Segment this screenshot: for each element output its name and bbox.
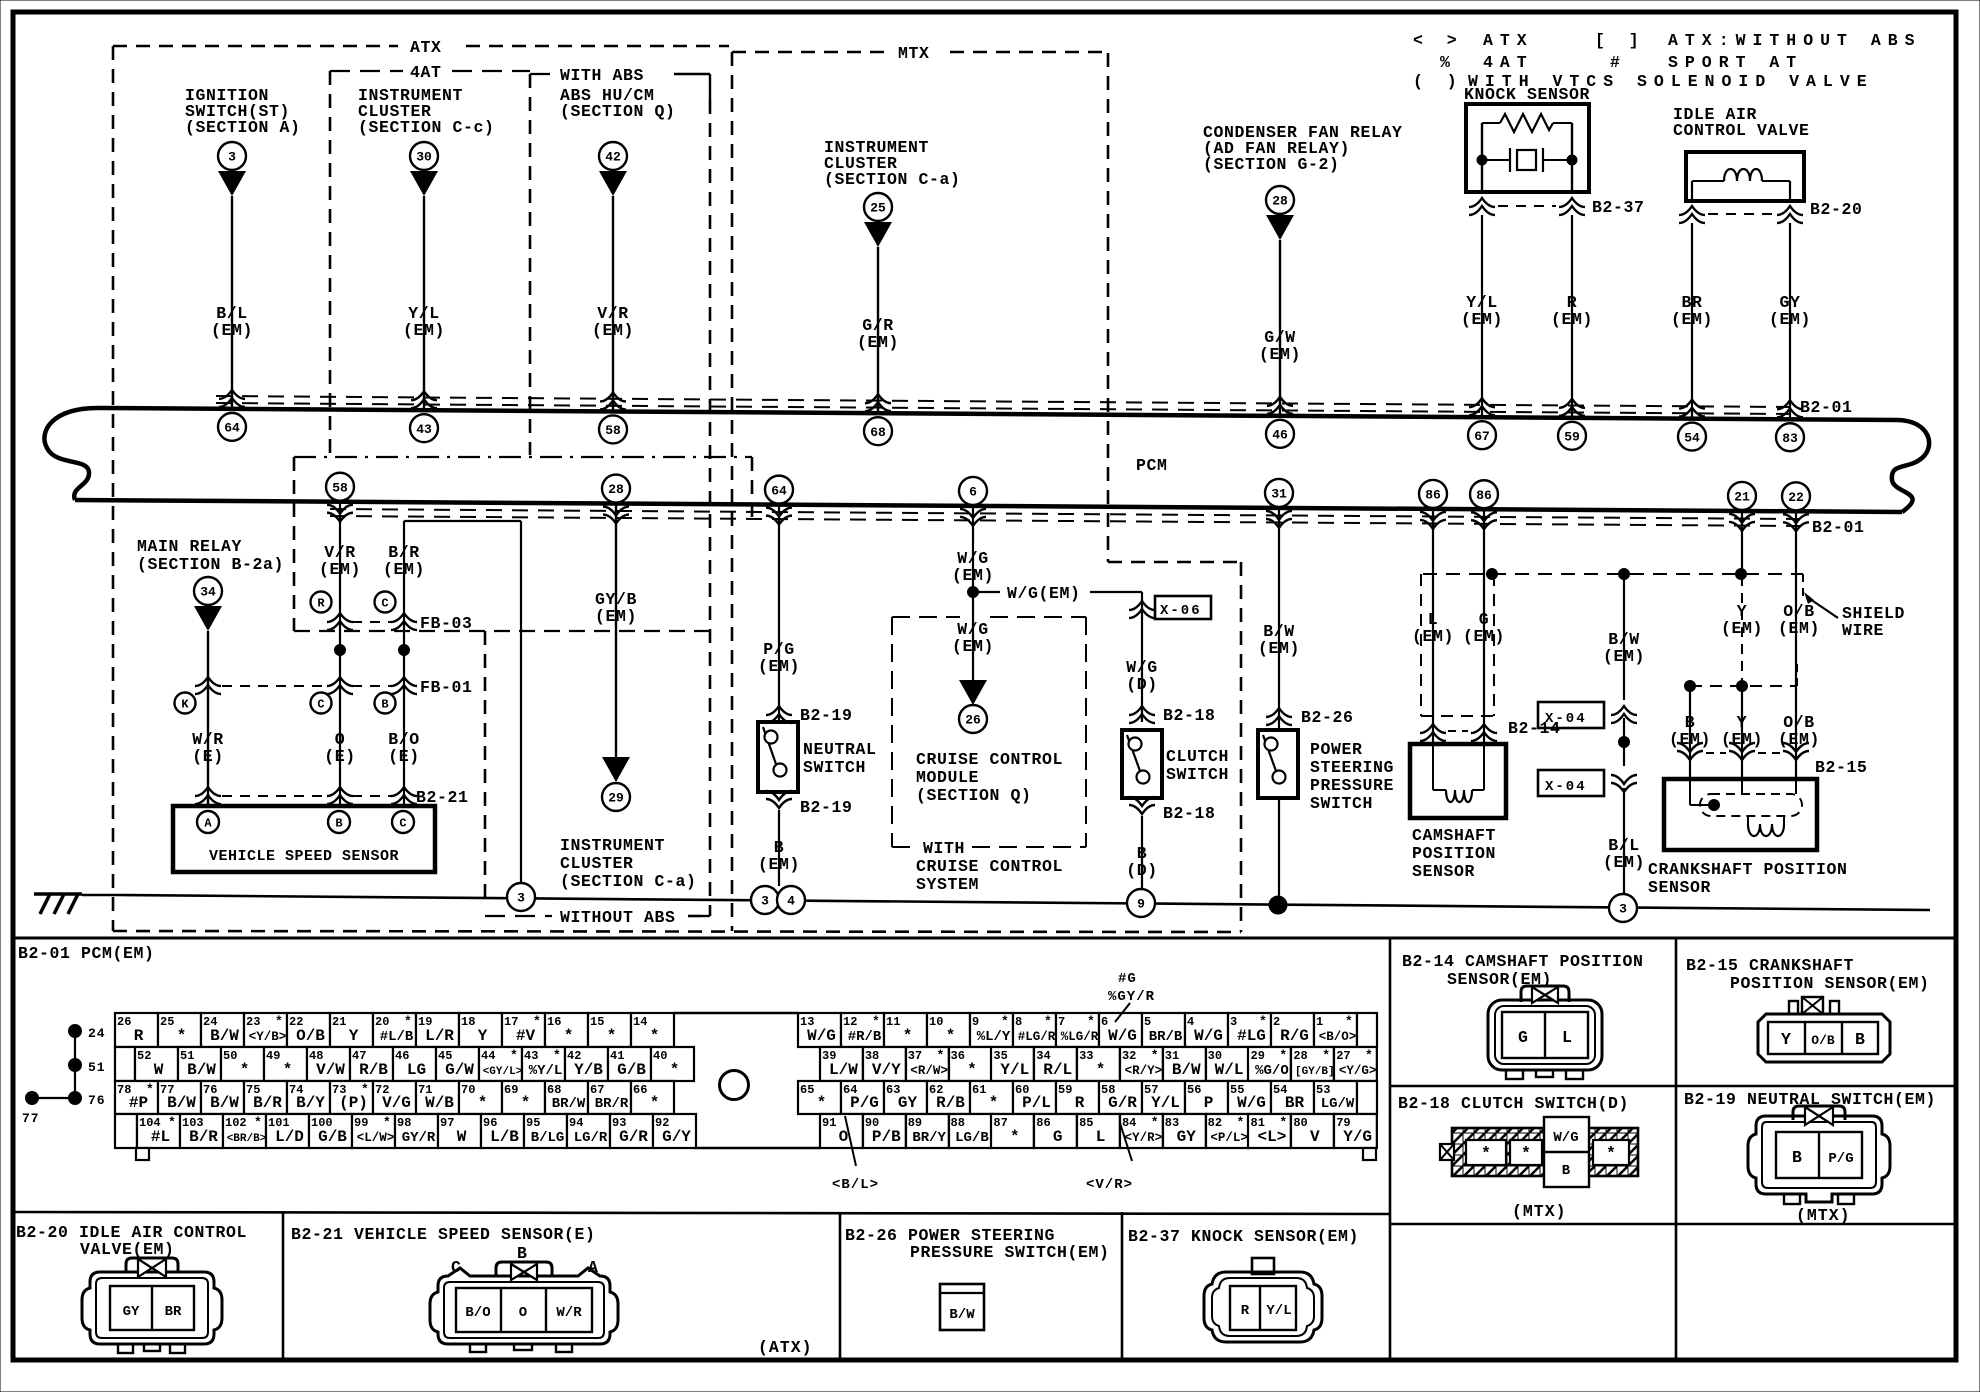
svg-text:(MTX): (MTX) — [1512, 1202, 1567, 1221]
svg-text:BR/W: BR/W — [552, 1096, 586, 1112]
svg-text:PRESSURE SWITCH(EM): PRESSURE SWITCH(EM) — [910, 1243, 1110, 1262]
svg-text:B2-18 CLUTCH SWITCH(D): B2-18 CLUTCH SWITCH(D) — [1398, 1094, 1629, 1113]
svg-text:64: 64 — [224, 421, 240, 436]
svg-text:70: 70 — [461, 1083, 475, 1097]
svg-text:77: 77 — [22, 1111, 40, 1126]
svg-text:59: 59 — [1058, 1083, 1072, 1097]
svg-text:84: 84 — [1122, 1116, 1136, 1130]
svg-text:G/Y: G/Y — [662, 1128, 691, 1146]
svg-text:*: * — [1322, 1048, 1330, 1063]
svg-text:B/LG: B/LG — [531, 1130, 565, 1146]
svg-text:O: O — [839, 1128, 849, 1146]
svg-text:<B/L>: <B/L> — [832, 1177, 879, 1193]
svg-text:*: * — [1481, 1144, 1491, 1163]
svg-text:80: 80 — [1293, 1116, 1307, 1130]
svg-text:B: B — [1792, 1148, 1802, 1167]
svg-text:[ ]: [ ] — [1595, 31, 1646, 50]
svg-text:SWITCH: SWITCH — [1166, 765, 1229, 784]
svg-text:28: 28 — [1293, 1049, 1307, 1063]
svg-text:91: 91 — [822, 1116, 836, 1130]
svg-text:C: C — [399, 816, 406, 830]
svg-text:64: 64 — [771, 483, 787, 498]
svg-text:R/G: R/G — [1280, 1027, 1309, 1045]
svg-text:R: R — [134, 1027, 144, 1045]
svg-text:31: 31 — [1271, 487, 1287, 502]
svg-text:22: 22 — [1788, 490, 1804, 505]
svg-text:*: * — [275, 1014, 283, 1029]
svg-text:#LG: #LG — [1237, 1027, 1266, 1045]
svg-text:<GY/L>: <GY/L> — [483, 1066, 523, 1078]
svg-text:97: 97 — [440, 1116, 454, 1130]
svg-text:6: 6 — [969, 485, 977, 500]
svg-text:B2-15 CRANKSHAFT: B2-15 CRANKSHAFT — [1686, 956, 1854, 975]
svg-text:*: * — [1096, 1061, 1106, 1079]
svg-text:*: * — [1001, 1014, 1009, 1029]
svg-text:R/L: R/L — [1043, 1061, 1072, 1079]
svg-text:68: 68 — [547, 1083, 561, 1097]
svg-text:86: 86 — [1425, 488, 1441, 503]
svg-text:<P/L>: <P/L> — [1210, 1131, 1248, 1145]
svg-text:*: * — [1345, 1014, 1353, 1029]
svg-text:B2-18: B2-18 — [1163, 706, 1216, 725]
svg-text:4AT: 4AT — [410, 63, 442, 82]
svg-text:CONTROL VALVE: CONTROL VALVE — [1673, 121, 1810, 140]
svg-text:58: 58 — [332, 480, 348, 495]
svg-text:Y/L: Y/L — [1151, 1094, 1180, 1112]
svg-text:*: * — [404, 1014, 412, 1029]
svg-text:R/B: R/B — [936, 1094, 965, 1112]
svg-text:56: 56 — [1187, 1083, 1201, 1097]
svg-text:(EM): (EM) — [1669, 730, 1711, 749]
svg-text:16: 16 — [547, 1015, 561, 1029]
svg-text:*: * — [650, 1094, 660, 1112]
svg-text:R: R — [1241, 1303, 1250, 1319]
svg-text:87: 87 — [993, 1116, 1007, 1130]
svg-text:V: V — [1310, 1128, 1320, 1146]
svg-text:B2-19: B2-19 — [800, 798, 853, 817]
svg-text:< >: < > — [1413, 31, 1464, 50]
svg-text:(EM): (EM) — [592, 321, 634, 340]
svg-text:CLUSTER: CLUSTER — [560, 854, 634, 873]
svg-text:B2-37: B2-37 — [1592, 198, 1645, 217]
svg-text:(EM): (EM) — [595, 607, 637, 626]
svg-text:46: 46 — [1272, 428, 1288, 443]
svg-text:X-04: X-04 — [1545, 711, 1587, 727]
svg-text:B2-14 CAMSHAFT POSITION: B2-14 CAMSHAFT POSITION — [1402, 952, 1644, 971]
svg-text:R: R — [317, 596, 325, 610]
svg-text:INSTRUMENT: INSTRUMENT — [560, 836, 665, 855]
svg-text:<V/R>: <V/R> — [1086, 1177, 1133, 1193]
svg-text:#P: #P — [129, 1094, 148, 1112]
svg-text:GY: GY — [898, 1094, 918, 1112]
svg-text:%LG/R: %LG/R — [1061, 1030, 1099, 1044]
svg-text:*: * — [521, 1094, 531, 1112]
svg-text:B/W: B/W — [210, 1027, 239, 1045]
svg-text:Y/L: Y/L — [1266, 1303, 1291, 1319]
svg-text:11: 11 — [886, 1015, 900, 1029]
svg-text:( ): ( ) — [1413, 72, 1464, 91]
svg-text:Y/B: Y/B — [574, 1061, 603, 1079]
svg-text:*: * — [1279, 1048, 1287, 1063]
svg-text:B/W: B/W — [187, 1061, 216, 1079]
svg-text:P/G: P/G — [850, 1094, 879, 1112]
svg-text:(EM): (EM) — [952, 566, 994, 585]
svg-text:95: 95 — [526, 1116, 540, 1130]
svg-text:SYSTEM: SYSTEM — [916, 875, 979, 894]
svg-text:B2-01 PCM(EM): B2-01 PCM(EM) — [18, 944, 155, 963]
svg-text:SENSOR: SENSOR — [1412, 862, 1475, 881]
svg-text:CLUTCH: CLUTCH — [1166, 747, 1229, 766]
svg-text:(E): (E) — [192, 747, 224, 766]
svg-text:NEUTRAL: NEUTRAL — [803, 740, 877, 759]
svg-text:7: 7 — [1058, 1015, 1065, 1029]
svg-text:(EM): (EM) — [1259, 345, 1301, 364]
svg-text:%L/Y: %L/Y — [977, 1029, 1011, 1045]
svg-text:VEHICLE SPEED SENSOR: VEHICLE SPEED SENSOR — [209, 848, 399, 865]
svg-text:(SECTION C-a): (SECTION C-a) — [560, 872, 697, 891]
svg-text:SPORT AT: SPORT AT — [1668, 53, 1803, 72]
svg-text:*: * — [564, 1027, 574, 1045]
svg-text:(EM): (EM) — [952, 637, 994, 656]
svg-text:STEERING: STEERING — [1310, 758, 1394, 777]
svg-text:43: 43 — [524, 1049, 538, 1063]
svg-text:(EM): (EM) — [1721, 730, 1763, 749]
svg-text:V/W: V/W — [316, 1061, 345, 1079]
svg-text:B2-21 VEHICLE SPEED SENSOR(E): B2-21 VEHICLE SPEED SENSOR(E) — [291, 1225, 596, 1244]
svg-text:G/W: G/W — [445, 1061, 474, 1079]
svg-text:53: 53 — [1316, 1083, 1330, 1097]
svg-text:69: 69 — [504, 1083, 518, 1097]
svg-text:<B/O>: <B/O> — [1319, 1030, 1357, 1044]
svg-text:(SECTION Q): (SECTION Q) — [916, 786, 1032, 805]
svg-text:W/G: W/G — [1108, 1027, 1137, 1045]
svg-text:10: 10 — [929, 1015, 943, 1029]
svg-text:26: 26 — [965, 713, 981, 728]
svg-text:#V: #V — [516, 1027, 536, 1045]
svg-text:<L/W>: <L/W> — [357, 1131, 395, 1145]
svg-text:*: * — [903, 1027, 913, 1045]
svg-text:GY: GY — [123, 1304, 140, 1320]
svg-text:25: 25 — [160, 1015, 174, 1029]
svg-text:VALVE(EM): VALVE(EM) — [80, 1240, 175, 1259]
svg-text:65: 65 — [800, 1083, 814, 1097]
svg-text:21: 21 — [332, 1015, 346, 1029]
svg-text:12: 12 — [843, 1015, 857, 1029]
svg-text:A: A — [204, 816, 212, 830]
svg-text:76: 76 — [88, 1093, 106, 1108]
svg-text:(D): (D) — [1126, 675, 1158, 694]
svg-text:%Y/L: %Y/L — [529, 1063, 563, 1079]
svg-text:52: 52 — [137, 1049, 151, 1063]
svg-text:Y/G: Y/G — [1343, 1128, 1372, 1146]
svg-text:W/G: W/G — [807, 1027, 836, 1045]
svg-text:X-04: X-04 — [1545, 779, 1587, 795]
svg-text:*: * — [383, 1115, 391, 1130]
svg-text:67: 67 — [590, 1083, 604, 1097]
svg-text:W: W — [154, 1061, 164, 1079]
svg-text:CAMSHAFT: CAMSHAFT — [1412, 826, 1496, 845]
svg-text:G/B: G/B — [318, 1128, 347, 1146]
svg-text:G/B: G/B — [617, 1061, 646, 1079]
svg-text:40: 40 — [653, 1049, 667, 1063]
svg-text:B2-01: B2-01 — [1800, 398, 1853, 417]
svg-text:#L/B: #L/B — [380, 1029, 414, 1045]
svg-text:#R/B: #R/B — [848, 1029, 882, 1045]
svg-text:9: 9 — [1137, 897, 1145, 912]
svg-text:(EM): (EM) — [857, 333, 899, 352]
svg-text:BR: BR — [165, 1304, 182, 1320]
svg-text:44: 44 — [481, 1049, 495, 1063]
svg-text:(EM): (EM) — [1778, 730, 1820, 749]
svg-text:5: 5 — [1144, 1015, 1151, 1029]
svg-text:BR/B: BR/B — [1149, 1029, 1183, 1045]
svg-text:*: * — [1151, 1115, 1159, 1130]
svg-text:P/B: P/B — [872, 1128, 901, 1146]
svg-text:25: 25 — [870, 201, 886, 216]
svg-text:*: * — [1606, 1144, 1616, 1163]
svg-text:LG/W: LG/W — [1321, 1096, 1355, 1112]
svg-text:(EM): (EM) — [1551, 310, 1593, 329]
svg-text:Y: Y — [478, 1027, 488, 1045]
svg-text:89: 89 — [908, 1116, 922, 1130]
svg-text:O/B: O/B — [1811, 1033, 1835, 1048]
svg-text:34: 34 — [200, 585, 216, 600]
svg-text:LG: LG — [407, 1061, 426, 1079]
svg-text:59: 59 — [1564, 429, 1580, 444]
svg-text:85: 85 — [1079, 1116, 1093, 1130]
svg-text:9: 9 — [972, 1015, 979, 1029]
svg-text:B/W: B/W — [1172, 1061, 1201, 1079]
svg-text:(EM): (EM) — [1603, 647, 1645, 666]
svg-text:B/R: B/R — [253, 1094, 282, 1112]
svg-text:<Y/G>: <Y/G> — [1339, 1064, 1377, 1078]
svg-text:[GY/B]: [GY/B] — [1295, 1066, 1335, 1078]
svg-text:C: C — [381, 596, 388, 610]
svg-text:CRANKSHAFT POSITION: CRANKSHAFT POSITION — [1648, 860, 1848, 879]
svg-text:1: 1 — [1316, 1015, 1323, 1029]
svg-text:LG/B: LG/B — [955, 1130, 989, 1146]
svg-text:L/W: L/W — [829, 1061, 858, 1079]
svg-text:(EM): (EM) — [383, 560, 425, 579]
svg-text:FB-01: FB-01 — [420, 678, 473, 697]
svg-text:ATX: ATX — [1483, 31, 1534, 50]
svg-text:WITH ABS: WITH ABS — [560, 66, 644, 85]
svg-text:R/B: R/B — [359, 1061, 388, 1079]
svg-text:98: 98 — [397, 1116, 411, 1130]
svg-text:66: 66 — [633, 1083, 647, 1097]
svg-text:49: 49 — [266, 1049, 280, 1063]
svg-text:*: * — [177, 1027, 187, 1045]
svg-text:28: 28 — [1272, 194, 1288, 209]
svg-text:G/R: G/R — [1108, 1094, 1137, 1112]
svg-text:67: 67 — [1474, 429, 1490, 444]
svg-text:B: B — [1562, 1163, 1571, 1179]
svg-text:G: G — [1053, 1128, 1063, 1146]
svg-text:ATX: ATX — [410, 38, 442, 57]
svg-text:WIRE: WIRE — [1842, 621, 1884, 640]
svg-text:MTX: MTX — [898, 44, 930, 63]
svg-text:51: 51 — [88, 1060, 106, 1075]
svg-text:(EM): (EM) — [1778, 619, 1820, 638]
svg-text:K: K — [181, 697, 189, 711]
svg-text:B: B — [517, 1244, 527, 1263]
svg-text:3: 3 — [1619, 902, 1627, 917]
svg-text:(EM): (EM) — [1258, 639, 1300, 658]
svg-text:*: * — [670, 1061, 680, 1079]
svg-text:*: * — [1044, 1014, 1052, 1029]
svg-text:%G/O: %G/O — [1255, 1063, 1289, 1079]
svg-text:PRESSURE: PRESSURE — [1310, 776, 1394, 795]
svg-text:15: 15 — [590, 1015, 604, 1029]
svg-text:B2-20: B2-20 — [1810, 200, 1863, 219]
svg-text:(ATX): (ATX) — [758, 1338, 813, 1357]
svg-text:Y: Y — [1781, 1030, 1791, 1049]
svg-text:26: 26 — [117, 1015, 131, 1029]
svg-text:WITH: WITH — [923, 839, 965, 858]
svg-text:(E): (E) — [324, 747, 356, 766]
svg-text:POSITION: POSITION — [1412, 844, 1496, 863]
svg-text:3: 3 — [517, 891, 525, 906]
svg-text:L: L — [1562, 1028, 1572, 1047]
svg-text:B/R: B/R — [189, 1128, 218, 1146]
svg-text:PCM: PCM — [1136, 456, 1168, 475]
svg-text:86: 86 — [1476, 488, 1492, 503]
svg-text:3: 3 — [228, 150, 236, 165]
svg-text:W/G: W/G — [1237, 1094, 1266, 1112]
svg-text:Y/L: Y/L — [1000, 1061, 1029, 1079]
svg-text:(SECTION Q): (SECTION Q) — [560, 102, 676, 121]
svg-text:ATX:WITHOUT ABS: ATX:WITHOUT ABS — [1668, 31, 1922, 50]
svg-text:3: 3 — [761, 894, 769, 909]
svg-text:4AT: 4AT — [1483, 53, 1534, 72]
svg-text:<Y/R>: <Y/R> — [1125, 1131, 1163, 1145]
svg-text:#G: #G — [1118, 971, 1137, 987]
svg-text:V/Y: V/Y — [872, 1061, 901, 1079]
svg-text:B2-26: B2-26 — [1301, 708, 1354, 727]
svg-text:(P): (P) — [339, 1094, 368, 1112]
svg-text:37: 37 — [908, 1049, 922, 1063]
svg-text:54: 54 — [1684, 430, 1700, 445]
svg-text:86: 86 — [1036, 1116, 1050, 1130]
svg-text:W/G: W/G — [1194, 1027, 1223, 1045]
svg-text:*: * — [1151, 1048, 1159, 1063]
svg-text:P/L: P/L — [1022, 1094, 1051, 1112]
svg-text:B2-01: B2-01 — [1812, 518, 1865, 537]
svg-text:(EM): (EM) — [403, 321, 445, 340]
svg-text:<Y/B>: <Y/B> — [249, 1030, 287, 1044]
svg-text:W/L: W/L — [1215, 1061, 1244, 1079]
svg-text:33: 33 — [1079, 1049, 1093, 1063]
svg-text:W/G: W/G — [1553, 1130, 1578, 1146]
svg-text:24: 24 — [88, 1026, 106, 1041]
svg-text:*: * — [1365, 1048, 1373, 1063]
svg-text:(EM): (EM) — [1461, 310, 1503, 329]
svg-text:*: * — [967, 1061, 977, 1079]
svg-text:82: 82 — [1208, 1116, 1222, 1130]
svg-text:30: 30 — [416, 150, 432, 165]
svg-text:CRUISE CONTROL: CRUISE CONTROL — [916, 750, 1063, 769]
svg-text:R: R — [1075, 1094, 1085, 1112]
svg-text:W/B: W/B — [425, 1094, 454, 1112]
svg-text:Y: Y — [349, 1027, 359, 1045]
svg-text:94: 94 — [569, 1116, 583, 1130]
svg-text:%: % — [1440, 53, 1457, 72]
svg-text:SWITCH: SWITCH — [1310, 794, 1373, 813]
svg-text:FB-03: FB-03 — [420, 614, 473, 633]
svg-text:18: 18 — [461, 1015, 475, 1029]
svg-text:<R/Y>: <R/Y> — [1125, 1064, 1163, 1078]
svg-text:28: 28 — [608, 482, 624, 497]
svg-text:29: 29 — [608, 791, 624, 806]
svg-text:58: 58 — [605, 423, 621, 438]
svg-text:BR/Y: BR/Y — [912, 1130, 946, 1146]
svg-text:(SECTION C-a): (SECTION C-a) — [824, 170, 961, 189]
svg-text:MODULE: MODULE — [916, 768, 979, 787]
svg-text:C: C — [317, 697, 324, 711]
svg-text:L/R: L/R — [425, 1027, 454, 1045]
svg-text:B: B — [1855, 1030, 1865, 1049]
svg-text:W: W — [457, 1128, 467, 1146]
svg-text:MAIN RELAY: MAIN RELAY — [137, 537, 242, 556]
svg-text:(EM): (EM) — [211, 321, 253, 340]
svg-text:(EM): (EM) — [1603, 853, 1645, 872]
svg-text:G/R: G/R — [619, 1128, 648, 1146]
svg-text:B/O: B/O — [465, 1305, 490, 1321]
svg-text:*: * — [1237, 1115, 1245, 1130]
svg-text:LG/R: LG/R — [574, 1130, 608, 1146]
svg-text:BR/R: BR/R — [595, 1096, 629, 1112]
svg-text:(EM): (EM) — [758, 855, 800, 874]
svg-text:36: 36 — [951, 1049, 965, 1063]
svg-text:(E): (E) — [388, 747, 420, 766]
svg-text:(EM): (EM) — [1463, 627, 1505, 646]
svg-text:P: P — [1204, 1094, 1214, 1112]
svg-text:42: 42 — [605, 150, 621, 165]
svg-text:#LG/R: #LG/R — [1018, 1030, 1056, 1044]
svg-text:99: 99 — [354, 1116, 368, 1130]
svg-text:L/B: L/B — [490, 1128, 519, 1146]
svg-text:4: 4 — [787, 894, 795, 909]
svg-text:*: * — [283, 1061, 293, 1079]
svg-text:KNOCK SENSOR: KNOCK SENSOR — [1464, 85, 1590, 104]
svg-text:B: B — [335, 816, 342, 830]
svg-text:23: 23 — [246, 1015, 260, 1029]
svg-text:32: 32 — [1122, 1049, 1136, 1063]
svg-text:8: 8 — [1015, 1015, 1022, 1029]
svg-text:*: * — [254, 1115, 262, 1130]
svg-text:*: * — [817, 1094, 827, 1112]
svg-text:(EM): (EM) — [1671, 310, 1713, 329]
svg-text:B2-18: B2-18 — [1163, 804, 1216, 823]
svg-text:*: * — [946, 1027, 956, 1045]
svg-text:*: * — [1087, 1014, 1095, 1029]
svg-text:<R/W>: <R/W> — [910, 1064, 948, 1078]
svg-text:#: # — [1610, 53, 1627, 72]
svg-text:*: * — [1010, 1128, 1020, 1146]
svg-text:(EM): (EM) — [758, 657, 800, 676]
svg-text:*: * — [607, 1027, 617, 1045]
svg-text:*: * — [937, 1048, 945, 1063]
svg-text:B: B — [381, 697, 388, 711]
svg-text:20: 20 — [375, 1015, 389, 1029]
svg-text:*: * — [478, 1094, 488, 1112]
svg-text:(SECTION B-2a): (SECTION B-2a) — [137, 555, 284, 574]
svg-text:#L: #L — [151, 1128, 170, 1146]
svg-text:V/G: V/G — [382, 1094, 411, 1112]
svg-text:CRUISE CONTROL: CRUISE CONTROL — [916, 857, 1063, 876]
svg-text:*: * — [989, 1094, 999, 1112]
svg-text:(SECTION G-2): (SECTION G-2) — [1203, 155, 1340, 174]
